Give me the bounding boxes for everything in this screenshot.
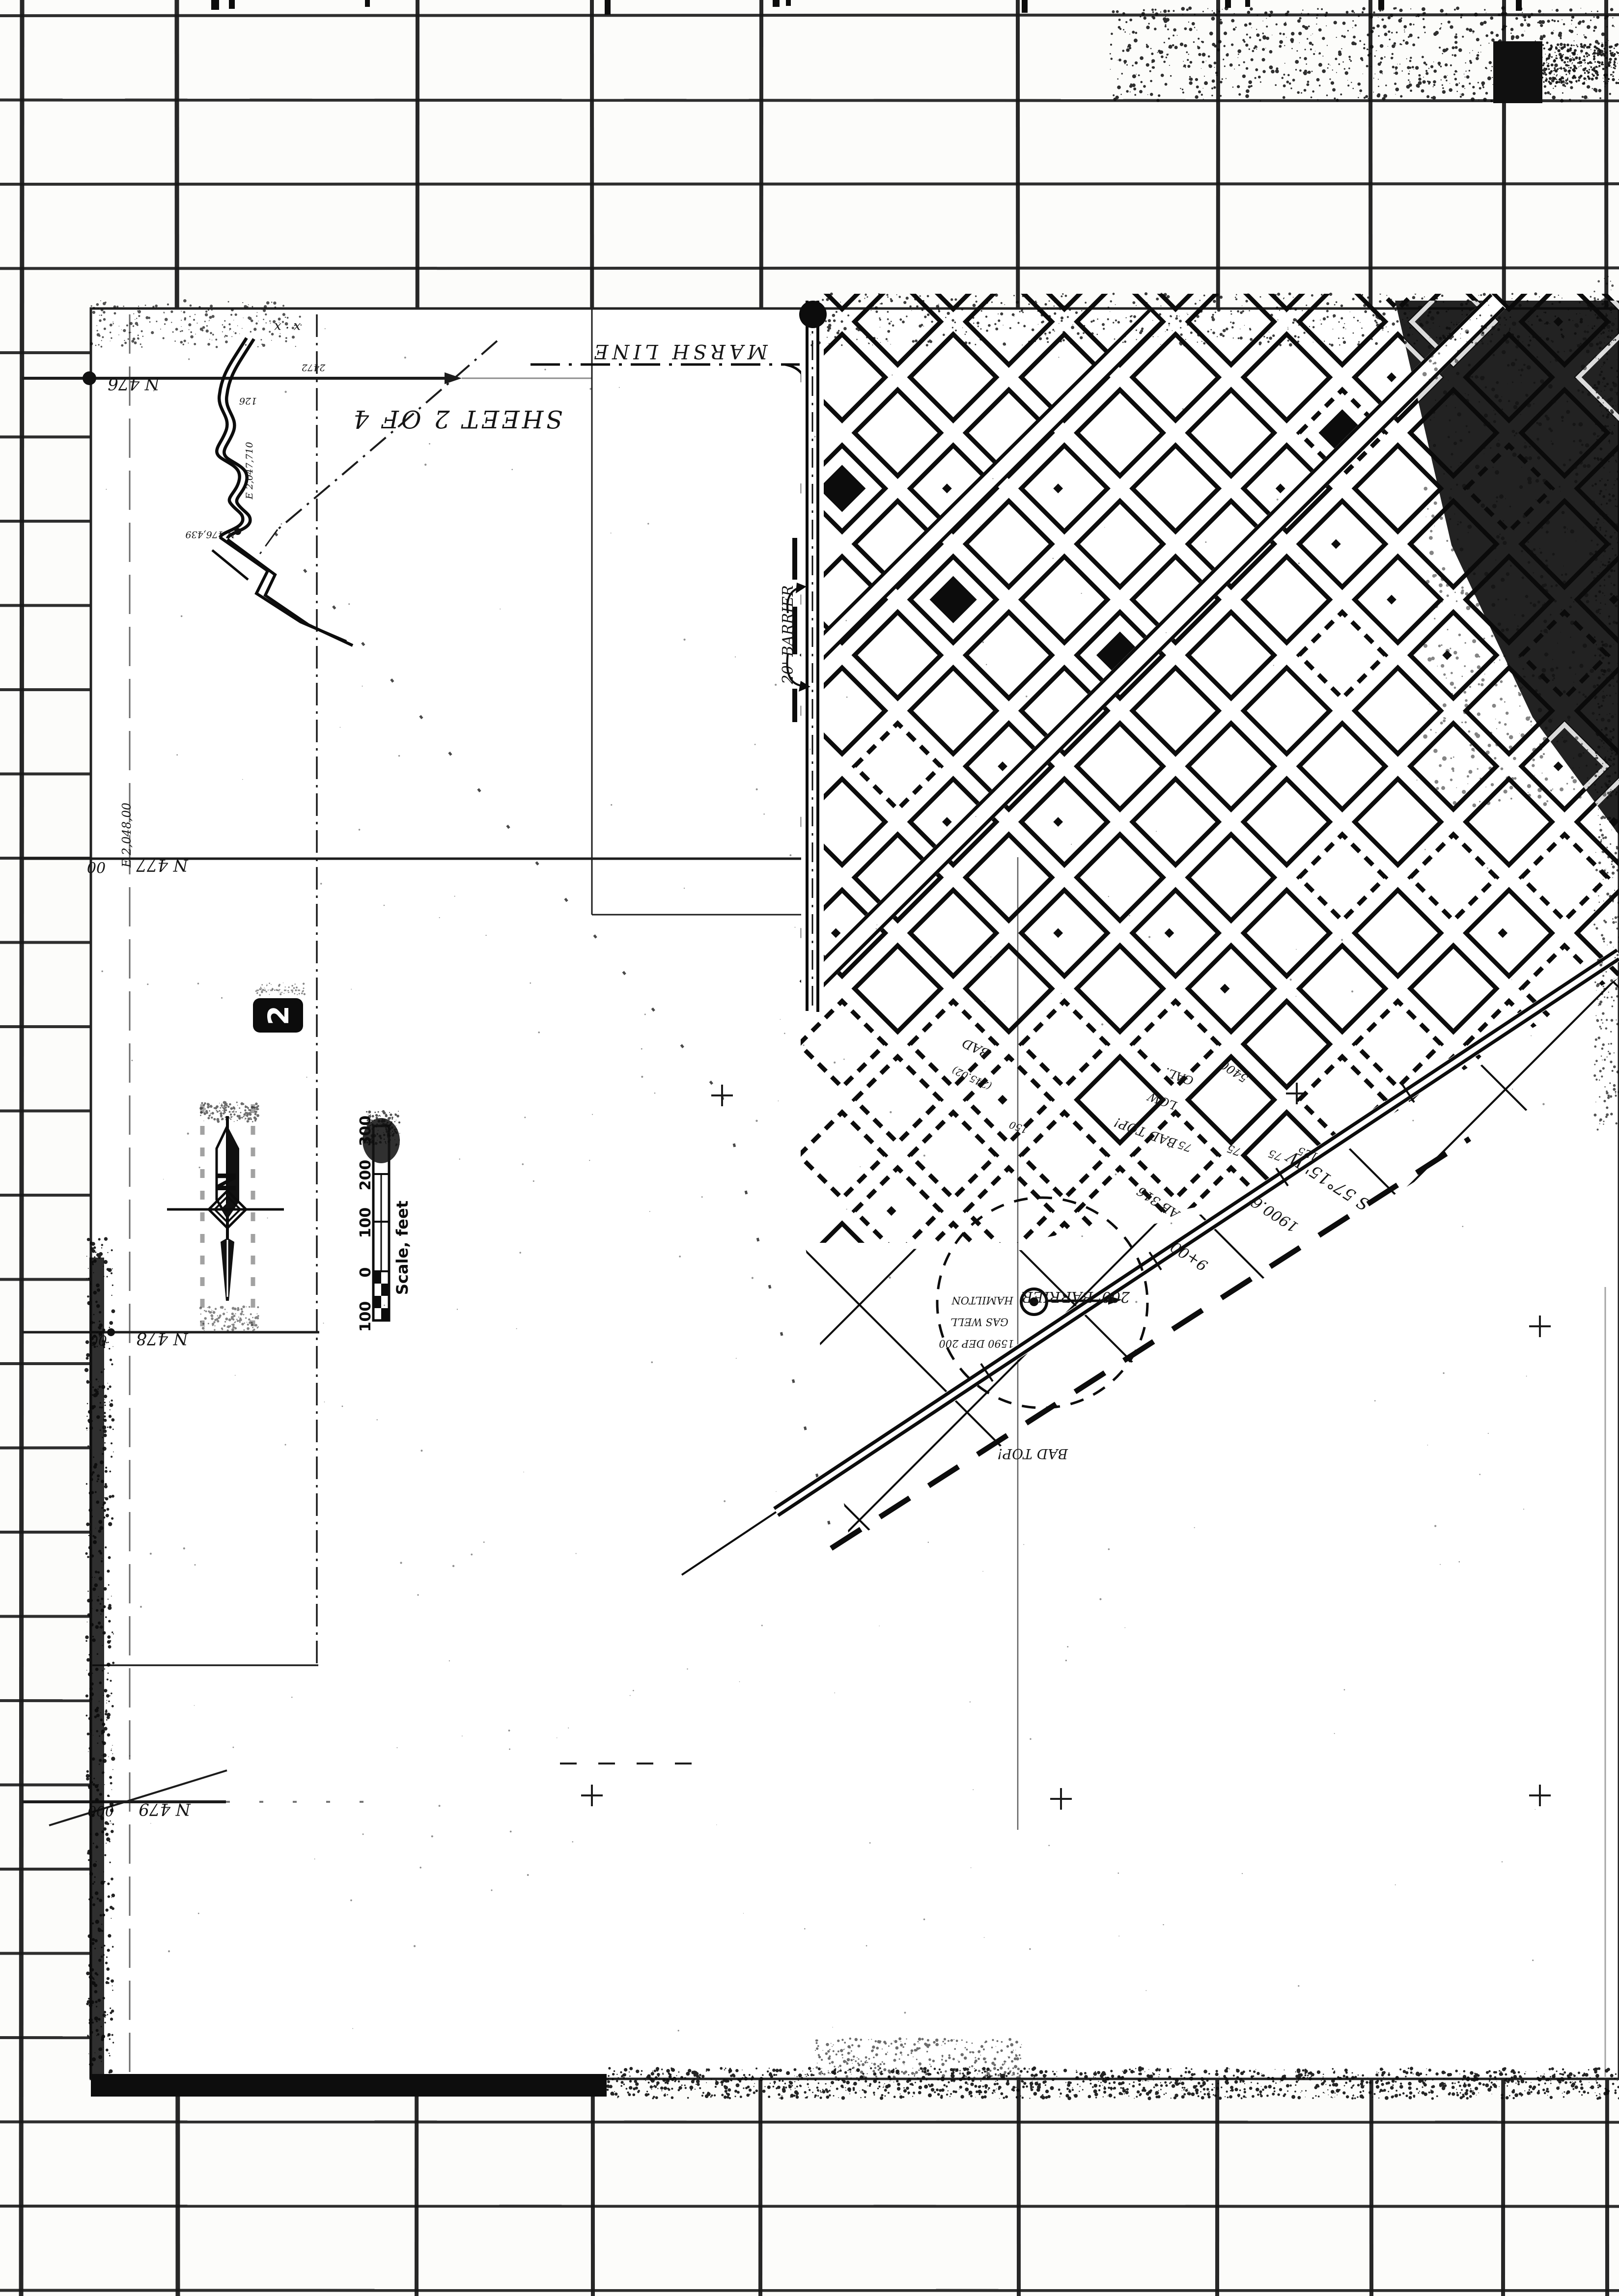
monument-northing: N 476,439 <box>185 529 235 540</box>
map-sheet <box>91 308 1619 2079</box>
scale-tick-200: 200 <box>357 1160 374 1191</box>
map-scan: N 300 200 100 0 100 Scale, feet 2 SHEET … <box>0 0 1619 2296</box>
stamp-number: 2 <box>262 1006 295 1025</box>
scanned-map-page: N 300 200 100 0 100 Scale, feet 2 SHEET … <box>0 0 1619 2296</box>
well-line2: GAS WELL <box>950 1316 1008 1328</box>
monument-misc: 2472 <box>302 362 326 373</box>
scale-tick-100: 100 <box>357 1207 374 1238</box>
monument-elev: 126 <box>239 395 257 406</box>
easting-477: E 2,048,00 <box>120 803 134 868</box>
marsh-label: MARSH LINE <box>590 340 768 363</box>
sheet-note: SHEET 2 OF 4 <box>351 405 562 433</box>
northing-476: N 476 <box>108 374 160 393</box>
road-note-badtop-2: BAD TOP! <box>997 1446 1068 1462</box>
northing-477-suffix: 00 <box>87 858 106 875</box>
northing-479: N 479 <box>139 1799 191 1819</box>
left-edge-streak <box>89 1258 104 2079</box>
corner-marks: x · x <box>274 320 301 335</box>
monument-easting: E 2,047,710 <box>244 442 255 500</box>
barrier-200-label: 200' BARRIER <box>1022 1288 1130 1305</box>
scale-caption: Scale, feet <box>393 1201 412 1295</box>
northing-478: N 478 <box>136 1329 188 1348</box>
north-label: N <box>213 1171 242 1193</box>
scale-tick-0: 0 <box>357 1267 374 1278</box>
top-right-blob <box>1493 41 1542 103</box>
barrier-20-label: 20' BARRIER <box>780 585 797 684</box>
northing-477: N 477 <box>136 855 189 875</box>
scale-tick-100b: 100 <box>357 1301 374 1332</box>
bottom-edge-band <box>91 2074 607 2097</box>
well-line3: 1590 DEP 200 <box>939 1338 1014 1349</box>
grid-edge-ticks <box>211 0 1522 15</box>
well-line1: HAMILTON <box>951 1294 1014 1306</box>
